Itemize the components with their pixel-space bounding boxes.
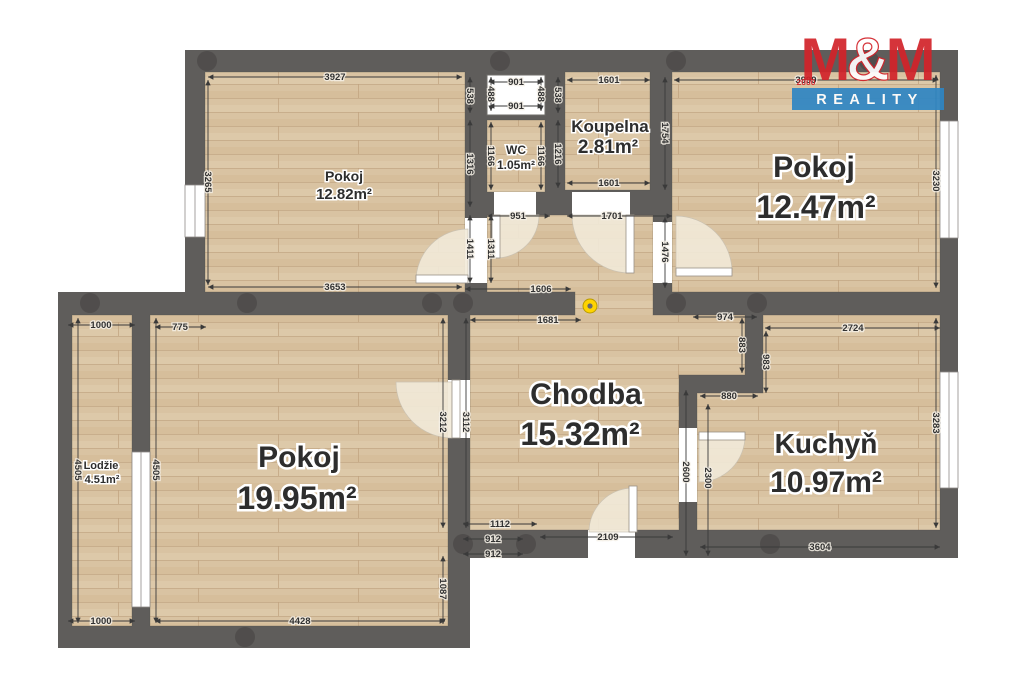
dimension-label: 1601 xyxy=(598,178,620,189)
dimension-label: 983 xyxy=(760,354,771,370)
dimension-label: 3230 xyxy=(930,170,941,191)
dimension-label: 2724 xyxy=(842,323,864,334)
logo-year: 2000 xyxy=(797,77,816,87)
label-pokoj1-name: Pokoj xyxy=(325,168,363,184)
dimension-label: 1000 xyxy=(90,616,111,627)
label-pokoj2-name: Pokoj xyxy=(773,151,855,184)
dimension-label: 2300 xyxy=(702,467,713,488)
dimension-label: 974 xyxy=(717,312,734,323)
floor-plan: 3927901901160139991601951170116061681974… xyxy=(0,0,1024,683)
wall-joint-blob xyxy=(453,534,473,554)
dimension-label: 880 xyxy=(721,391,737,402)
window-kuchyn-right xyxy=(940,372,958,488)
dimension-label: 1754 xyxy=(659,122,670,144)
dimension-label: 1000 xyxy=(90,320,111,331)
dimension-label: 1166 xyxy=(485,146,496,167)
wall-joint-blob xyxy=(516,534,536,554)
label-pokoj2-area: 12.47m² xyxy=(756,189,875,225)
wall-joint-blob xyxy=(80,293,100,313)
label-pokoj1-area: 12.82m² xyxy=(316,186,372,203)
wall-joint-blob xyxy=(666,293,686,313)
floor-plan-page: 3927901901160139991601951170116061681974… xyxy=(0,0,1024,683)
dimension-label: 3212 xyxy=(437,411,448,432)
dimension-label: 1476 xyxy=(659,241,670,262)
dimension-label: 912 xyxy=(485,534,501,545)
dimension-label: 1087 xyxy=(437,578,448,599)
label-pokoj3-name: Pokoj xyxy=(258,441,340,474)
dimension-label: 4505 xyxy=(150,459,161,481)
dimension-label: 1112 xyxy=(490,519,510,530)
dimension-label: 1701 xyxy=(601,211,623,222)
dimension-label: 3653 xyxy=(324,282,345,293)
dimension-label: 3112 xyxy=(460,412,471,433)
window-lodzie-door xyxy=(132,452,150,607)
dimension-label: 488 xyxy=(535,86,546,102)
dimension-label: 1606 xyxy=(530,284,551,295)
window-pokoj1-left xyxy=(185,185,205,237)
dimension-label: 488 xyxy=(485,86,496,102)
dimension-label: 2109 xyxy=(597,532,618,543)
label-wc-name: WC xyxy=(506,143,526,157)
dimension-label: 901 xyxy=(508,101,525,112)
dimension-label: 883 xyxy=(736,337,747,353)
dimension-label: 2600 xyxy=(680,461,691,482)
dimension-label: 1166 xyxy=(535,146,546,167)
wall-joint-blob xyxy=(422,293,442,313)
dimension-label: 1681 xyxy=(537,315,559,326)
position-marker-icon xyxy=(583,299,597,313)
label-chodba-name: Chodba xyxy=(530,378,642,411)
wall-joint-blob xyxy=(747,293,767,313)
label-pokoj3-area: 19.95m² xyxy=(237,480,356,516)
label-koupelna-area: 2.81m² xyxy=(578,137,638,158)
wall-joint-blob xyxy=(197,51,217,71)
dimension-label: 3927 xyxy=(324,72,345,83)
dimension-label: 901 xyxy=(508,77,525,88)
mm-reality-logo: M&M 2000 REALITY xyxy=(792,26,944,110)
label-kuchyn-name: Kuchyň xyxy=(775,428,878,459)
dimension-label: 1601 xyxy=(598,75,620,86)
dimension-label: 775 xyxy=(172,322,189,333)
dimension-label: 1311 xyxy=(485,239,496,260)
label-lodzie-name: Lodžie xyxy=(84,460,119,472)
dimension-label: 538 xyxy=(464,88,475,104)
wall-joint-blob xyxy=(237,293,257,313)
label-wc-area: 1.05m² xyxy=(497,158,535,172)
window-pokoj2-right xyxy=(940,121,958,238)
wall-joint-blob xyxy=(760,534,780,554)
dimension-label: 1216 xyxy=(552,143,563,164)
dimension-label: 912 xyxy=(485,549,501,560)
dimension-label: 3265 xyxy=(202,171,213,193)
dimension-label: 1316 xyxy=(464,153,475,174)
wall-joint-blob xyxy=(453,293,473,313)
wall-joint-blob xyxy=(490,51,510,71)
dimension-label: 3604 xyxy=(809,542,831,553)
label-chodba-area: 15.32m² xyxy=(520,416,639,452)
dimension-label: 951 xyxy=(510,211,527,222)
dimension-label: 1411 xyxy=(464,239,475,260)
label-lodzie-area: 4.51m² xyxy=(85,474,120,486)
wall-joint-blob xyxy=(235,627,255,647)
dimension-label: 4505 xyxy=(72,459,83,481)
wall-joint-blob xyxy=(666,51,686,71)
logo-reality-text: REALITY xyxy=(816,92,924,108)
dimension-label: 4428 xyxy=(289,616,310,627)
dimension-label: 538 xyxy=(552,87,563,103)
dimension-label: 3283 xyxy=(930,412,941,433)
label-koupelna-name: Koupelna xyxy=(571,117,649,136)
label-kuchyn-area: 10.97m² xyxy=(770,466,882,499)
logo-mm-text: M&M xyxy=(800,26,931,93)
